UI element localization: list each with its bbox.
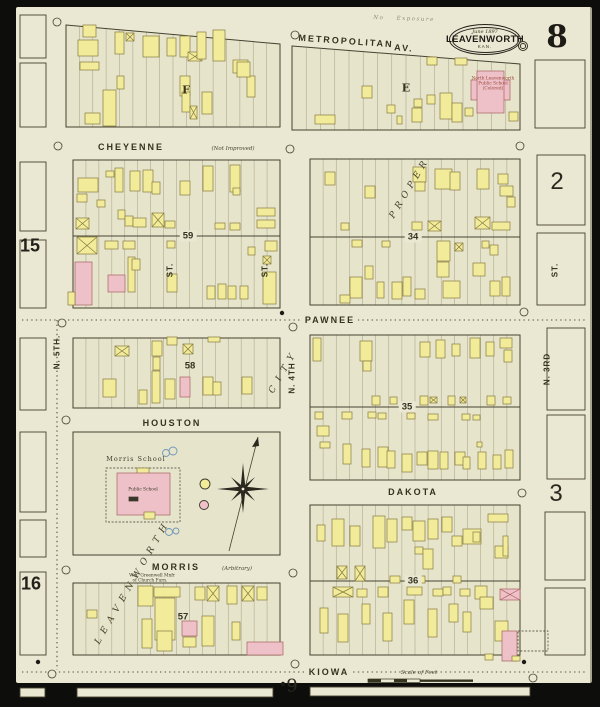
building-frame (492, 222, 510, 230)
building-frame (218, 284, 226, 299)
corner-dot (522, 660, 526, 664)
sanborn-map-sheet: June 1897 LEAVENWORTH KAN. 8 METROPOLITA… (0, 0, 600, 707)
building-frame (154, 587, 180, 597)
building-frame (237, 62, 250, 77)
margin-block (20, 63, 46, 127)
margin-block (20, 688, 45, 697)
building-frame (115, 168, 123, 192)
reference-circle (529, 674, 537, 682)
building-frame (202, 92, 212, 114)
building-frame (505, 450, 513, 468)
building-frame (247, 76, 255, 97)
building-frame (143, 170, 153, 192)
margin-block (310, 687, 530, 696)
building-frame (490, 281, 500, 296)
building-frame (83, 25, 96, 37)
building-frame (403, 277, 411, 296)
building-frame (477, 442, 482, 447)
reference-circle (289, 569, 297, 577)
title-city: LEAVENWORTH (446, 35, 524, 45)
building-frame (77, 194, 87, 202)
building-frame (213, 382, 221, 395)
building-frame (470, 338, 480, 358)
building-frame (415, 289, 425, 299)
building-frame (443, 281, 460, 298)
building-frame (144, 512, 155, 519)
building-frame (498, 174, 508, 184)
building-frame (257, 587, 267, 600)
building-frame (462, 414, 470, 420)
building-frame (265, 241, 277, 251)
building-brick (117, 473, 170, 515)
building-frame (473, 263, 485, 276)
building-frame (412, 222, 422, 230)
building-frame (105, 241, 118, 249)
building-frame (165, 221, 175, 228)
building-frame (125, 216, 133, 226)
street-label-st-left: ST. (166, 263, 175, 278)
morris-school-label: Morris School (106, 455, 165, 463)
building-frame (352, 240, 362, 247)
building-frame (340, 295, 350, 303)
building-frame (139, 390, 147, 404)
building-frame (103, 90, 116, 126)
margin-block (547, 328, 585, 410)
building-frame (97, 200, 105, 207)
block-number-59: 59 (180, 231, 197, 242)
building-frame (133, 218, 146, 227)
building-frame (106, 171, 114, 177)
street-label-metropolitan-av: AV. (394, 42, 414, 53)
building-frame (452, 344, 460, 356)
building-frame (378, 587, 388, 597)
margin-block (20, 162, 46, 231)
corner-dot (281, 682, 285, 686)
building-frame (378, 447, 388, 467)
building-frame (143, 36, 159, 57)
building-frame (387, 105, 395, 113)
margin-block (20, 338, 46, 410)
building-frame (437, 262, 449, 277)
building-frame (512, 656, 520, 661)
building-frame (373, 516, 385, 548)
building-frame (360, 341, 372, 361)
reference-circle (286, 145, 294, 153)
margin-ref-2: 2 (550, 168, 563, 196)
building-frame (413, 521, 425, 541)
street-note-not-improved: (Not Improved) (211, 146, 254, 152)
reference-circle (291, 660, 299, 668)
building-frame (463, 457, 470, 469)
colored-school-label-line3: (Colored) (483, 87, 504, 92)
building-frame (435, 169, 452, 189)
building-frame (504, 350, 512, 362)
building-frame (480, 597, 493, 609)
building-frame (78, 178, 98, 192)
block-number-58: 58 (185, 361, 196, 372)
building-frame (415, 547, 423, 554)
margin-block (20, 520, 46, 557)
building-frame (500, 186, 513, 196)
reference-circle (516, 142, 524, 150)
section-letter-e: E (402, 82, 410, 95)
building-frame (320, 442, 330, 448)
street-label-houston: HOUSTON (143, 418, 202, 428)
building-frame (80, 62, 99, 70)
building-frame (428, 519, 438, 539)
reference-circle (48, 670, 56, 678)
section-letter-f: F (182, 84, 190, 97)
building-frame (493, 455, 501, 469)
building-frame (452, 103, 462, 122)
margin-block (545, 588, 585, 655)
building-frame (482, 241, 489, 248)
corner-dot (280, 311, 284, 315)
building-frame (313, 338, 321, 361)
reference-circle (520, 308, 528, 316)
margin-block (547, 415, 585, 479)
building-frame (460, 589, 470, 596)
building-frame (78, 40, 98, 56)
building-frame (478, 452, 486, 469)
building-frame (455, 58, 467, 65)
building-frame (443, 587, 451, 595)
building-frame (420, 396, 428, 405)
building-frame (453, 576, 461, 583)
building-frame (362, 449, 370, 467)
building-frame (208, 337, 220, 342)
building-frame (502, 277, 510, 296)
building-frame (397, 116, 402, 124)
building-frame (315, 412, 323, 419)
title-date: June 1897 (472, 30, 498, 35)
publisher-seal (518, 41, 528, 51)
building-frame (490, 245, 498, 255)
building-frame (227, 586, 237, 604)
building-frame (152, 182, 160, 194)
building-frame (203, 166, 213, 191)
corner-dot (36, 660, 40, 664)
building-frame (230, 223, 240, 230)
street-label-n3rd: N. 3RD (543, 353, 552, 385)
building-frame (465, 108, 473, 116)
building-brick (75, 262, 92, 305)
building-frame (387, 451, 395, 468)
title-state: KAN. (478, 45, 493, 49)
building-frame (228, 286, 236, 299)
building-brick (108, 275, 125, 292)
building-frame (423, 549, 433, 569)
block-number-34: 34 (405, 232, 422, 243)
building-frame (213, 30, 225, 61)
building-frame (473, 532, 480, 542)
building-frame (442, 517, 452, 532)
building-frame (197, 32, 206, 59)
street-label-dakota: DAKOTA (388, 487, 438, 497)
block-number-35: 35 (399, 402, 416, 413)
building-frame (183, 637, 196, 647)
building-brick (182, 621, 197, 636)
building-frame (325, 172, 335, 185)
building-detail (129, 497, 138, 501)
margin-ref-3: 3 (549, 480, 562, 508)
building-frame (202, 616, 214, 646)
map-canvas (0, 0, 600, 707)
building-frame (365, 266, 373, 279)
building-frame (450, 172, 460, 190)
building-frame (357, 589, 367, 597)
building-frame (123, 241, 135, 249)
building-frame (485, 654, 493, 660)
street-label-kiowa: KIOWA (306, 667, 353, 677)
building-frame (240, 286, 248, 299)
margin-block (77, 688, 273, 697)
building-frame (103, 379, 116, 397)
building-frame (427, 57, 437, 65)
building-frame (138, 586, 153, 606)
reference-circle (58, 319, 66, 327)
bottom-sheet-ref-9: 9 (286, 676, 297, 697)
building-frame (392, 282, 402, 299)
building-frame (440, 93, 452, 119)
building-frame (402, 517, 412, 530)
building-frame (242, 377, 252, 394)
building-frame (486, 342, 494, 356)
building-frame (449, 604, 458, 622)
building-frame (433, 589, 443, 596)
building-frame (317, 426, 329, 436)
building-frame (452, 536, 462, 546)
building-frame (428, 451, 438, 469)
building-frame (437, 241, 450, 261)
building-frame (463, 612, 471, 632)
building-frame (180, 181, 190, 195)
margin-block (537, 233, 585, 305)
building-frame (488, 514, 508, 522)
building-frame (365, 186, 375, 198)
building-frame (404, 600, 414, 624)
building-frame (390, 397, 397, 404)
building-frame (130, 171, 140, 191)
margin-block (20, 432, 46, 512)
building-frame (167, 241, 175, 248)
title-oval: June 1897 LEAVENWORTH KAN. (449, 24, 521, 55)
building-frame (407, 587, 422, 595)
building-frame (509, 112, 518, 121)
building-frame (320, 608, 328, 633)
building-frame (362, 604, 370, 624)
building-frame (407, 413, 415, 419)
building-frame (142, 619, 152, 648)
reference-circle (54, 142, 62, 150)
building-frame (350, 277, 362, 298)
building-frame (152, 371, 160, 403)
building-frame (417, 452, 427, 465)
reference-circle (62, 416, 70, 424)
building-frame (341, 223, 349, 230)
building-frame (368, 412, 376, 418)
building-frame (87, 610, 97, 618)
tank-circle (200, 501, 209, 510)
building-frame (167, 337, 177, 345)
building-frame (428, 414, 438, 420)
building-frame (165, 379, 175, 399)
building-frame (414, 99, 422, 107)
building-frame (343, 444, 351, 464)
building-frame (378, 413, 386, 419)
building-frame (85, 113, 100, 124)
street-label-n5th: N. 5TH. (53, 335, 62, 370)
street-label-st-mid: ST. (261, 263, 270, 278)
building-frame (232, 622, 240, 640)
building-frame (500, 338, 512, 348)
building-frame (167, 38, 176, 56)
building-frame (363, 361, 371, 371)
building-frame (338, 614, 348, 642)
building-frame (203, 377, 213, 395)
reference-circle (53, 18, 61, 26)
building-frame (420, 342, 430, 357)
building-frame (215, 223, 225, 229)
building-frame (195, 587, 205, 600)
building-frame (382, 241, 390, 247)
building-frame (157, 631, 172, 651)
block-number-57: 57 (178, 612, 189, 623)
building-frame (350, 526, 360, 546)
tank-circle (200, 479, 210, 489)
building-brick (247, 642, 283, 655)
building-frame (448, 396, 455, 405)
building-brick (180, 377, 190, 397)
building-frame (487, 396, 495, 405)
reference-circle (289, 323, 297, 331)
building-frame (507, 197, 515, 207)
building-frame (428, 609, 437, 637)
reference-circle (62, 566, 70, 574)
building-frame (317, 525, 325, 541)
building-frame (412, 108, 422, 122)
morris-school-inner-label: Public School (128, 488, 158, 493)
building-frame (257, 208, 275, 216)
building-frame (207, 286, 215, 299)
building-frame (233, 188, 240, 195)
building-frame (383, 613, 392, 641)
margin-block (545, 512, 585, 580)
building-frame (153, 357, 160, 370)
building-frame (436, 340, 445, 358)
building-frame (315, 115, 335, 124)
building-frame (377, 282, 384, 298)
street-label-cheyenne: CHEYENNE (98, 142, 164, 152)
building-frame (440, 452, 448, 469)
block-number-36: 36 (405, 576, 422, 587)
building-frame (117, 76, 124, 89)
building-frame (503, 536, 508, 556)
building-frame (248, 247, 255, 255)
building-frame (257, 220, 275, 228)
reference-circle (518, 489, 526, 497)
scale-label: Scale of Feet (401, 670, 437, 676)
margin-block (535, 60, 585, 128)
building-frame (115, 32, 124, 54)
building-frame (362, 86, 372, 98)
building-frame (118, 210, 125, 219)
building-frame (68, 292, 75, 305)
building-frame (402, 454, 412, 472)
building-frame (342, 412, 352, 419)
margin-block (20, 15, 46, 58)
building-frame (390, 576, 400, 583)
street-label-pawnee: PAWNEE (302, 315, 358, 325)
building-frame (372, 396, 380, 405)
margin-ref-16: 16 (21, 574, 41, 595)
street-note-arbitrary: (Arbitrary) (222, 566, 252, 572)
building-frame (332, 519, 344, 546)
building-frame (427, 95, 435, 104)
building-frame (477, 169, 489, 189)
margin-ref-15: 15 (20, 236, 40, 257)
street-label-st-right: ST. (551, 263, 560, 278)
sheet-number: 8 (546, 19, 568, 55)
building-frame (387, 519, 397, 542)
street-label-morris: MORRIS (152, 562, 200, 572)
building-frame (152, 341, 162, 356)
building-frame (132, 259, 140, 270)
building-frame (473, 415, 480, 420)
building-frame (503, 397, 511, 404)
